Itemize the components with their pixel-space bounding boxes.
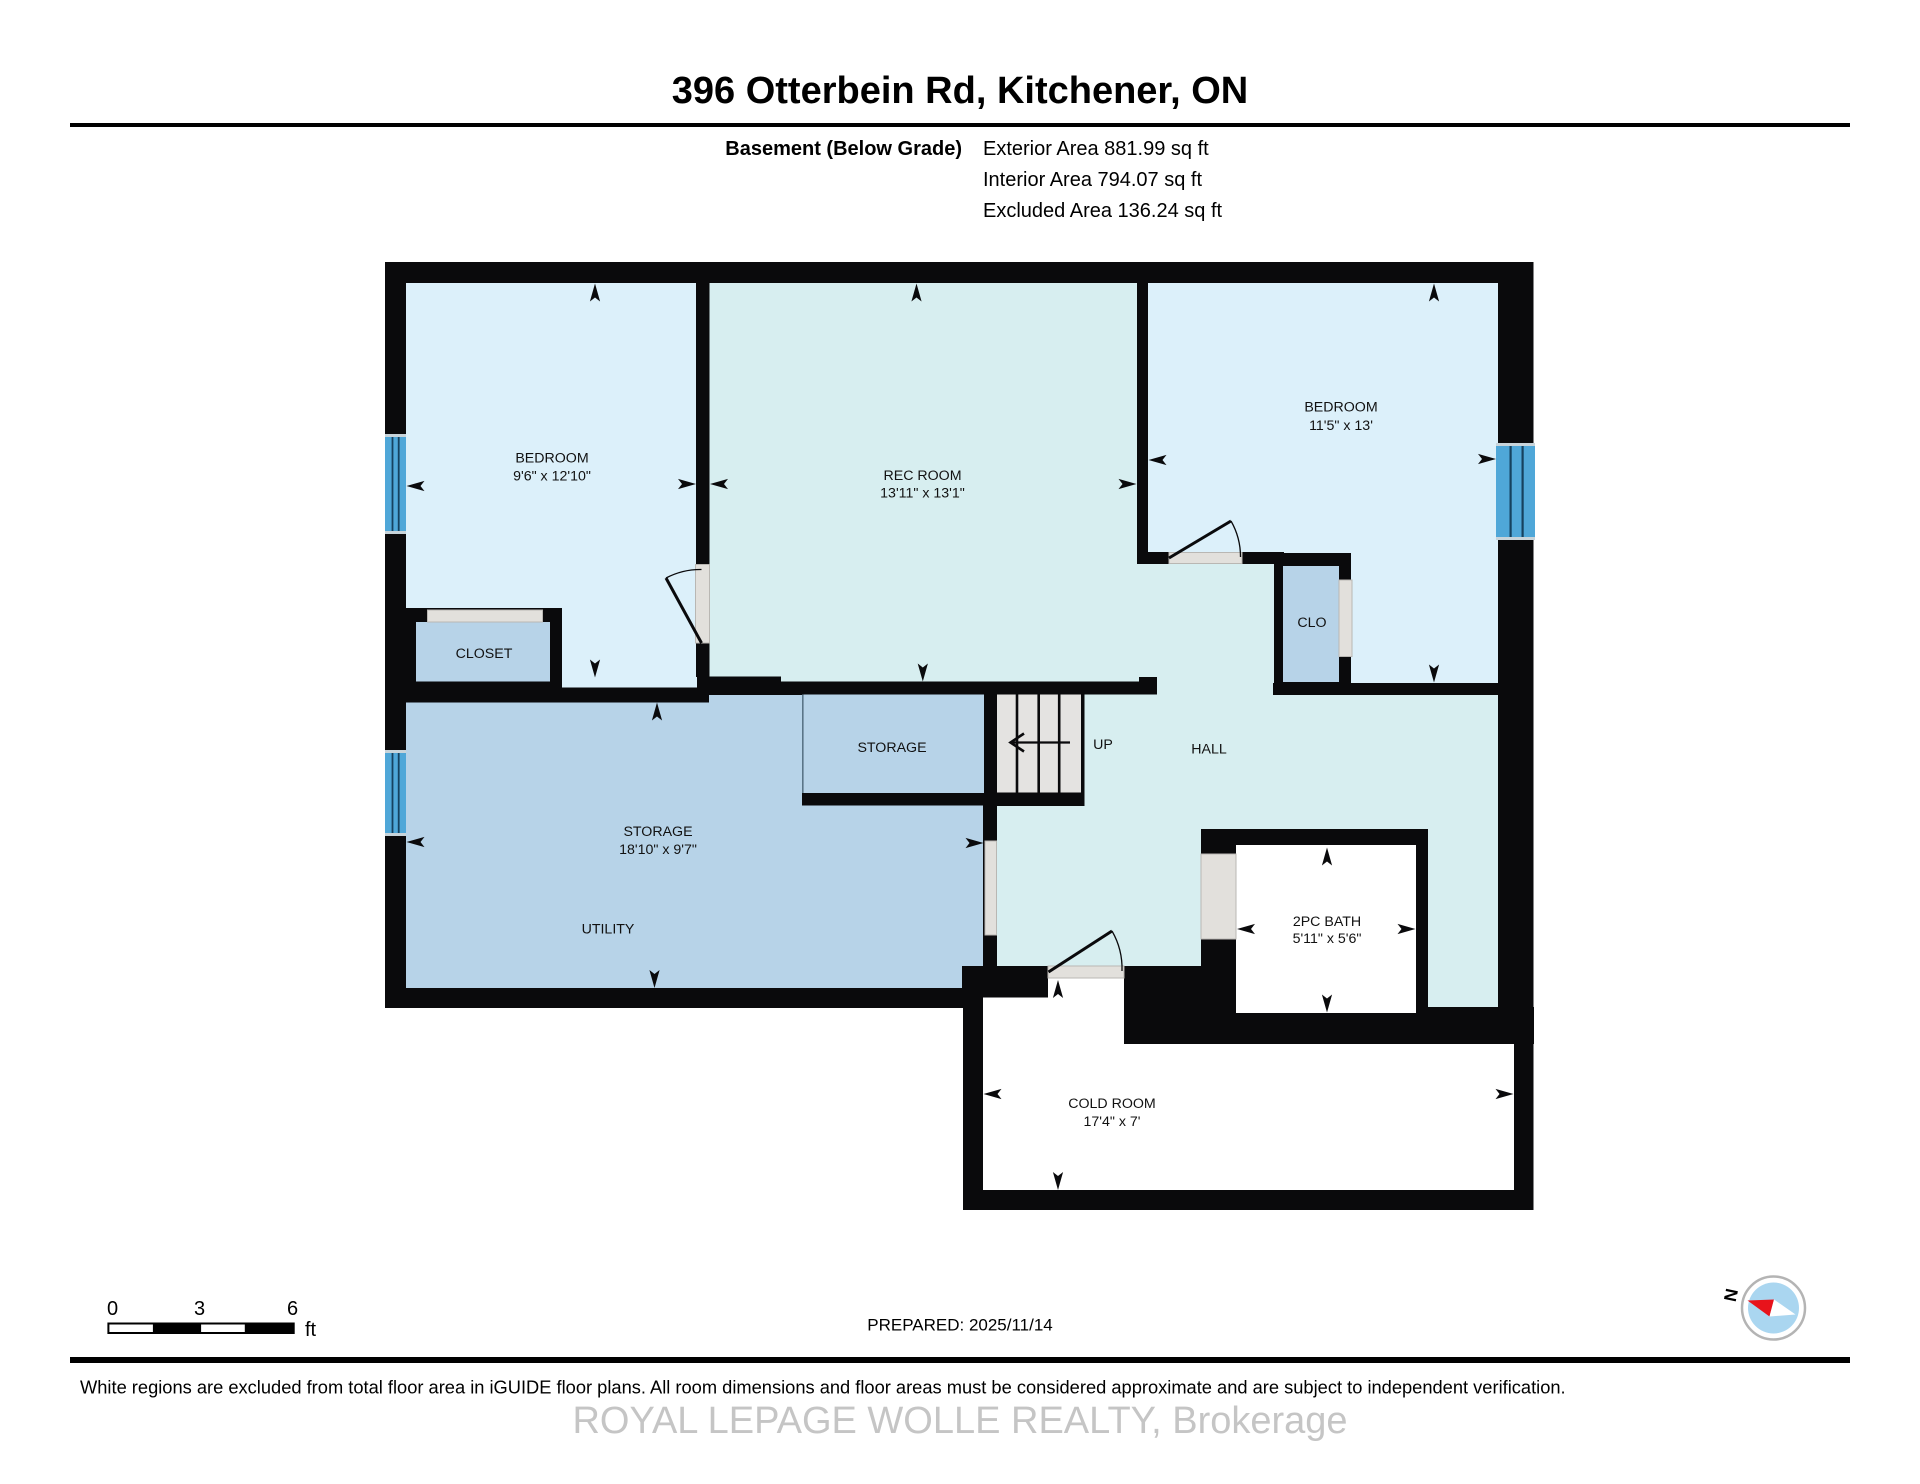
svg-text:Basement (Below Grade): Basement (Below Grade) [725, 138, 962, 160]
svg-text:5'11" x 5'6": 5'11" x 5'6" [1293, 931, 1362, 947]
svg-text:STORAGE: STORAGE [857, 740, 926, 756]
svg-text:BEDROOM: BEDROOM [1304, 400, 1377, 416]
svg-text:17'4" x 7': 17'4" x 7' [1084, 1114, 1141, 1130]
svg-text:ROYAL LEPAGE WOLLE REALTY, Bro: ROYAL LEPAGE WOLLE REALTY, Brokerage [572, 1400, 1347, 1442]
svg-text:Excluded Area 136.24 sq ft: Excluded Area 136.24 sq ft [983, 200, 1222, 222]
svg-text:UP: UP [1093, 737, 1113, 753]
svg-text:CLO: CLO [1297, 615, 1326, 631]
svg-text:UTILITY: UTILITY [582, 922, 635, 938]
svg-text:0: 0 [107, 1298, 118, 1320]
svg-text:6: 6 [287, 1298, 298, 1320]
svg-text:3: 3 [194, 1298, 205, 1320]
svg-text:BEDROOM: BEDROOM [515, 451, 588, 467]
svg-text:HALL: HALL [1191, 742, 1227, 758]
svg-text:Interior Area 794.07 sq ft: Interior Area 794.07 sq ft [983, 169, 1202, 191]
svg-text:PREPARED: 2025/11/14: PREPARED: 2025/11/14 [867, 1316, 1053, 1335]
svg-text:9'6" x 12'10": 9'6" x 12'10" [513, 469, 591, 485]
svg-text:396 Otterbein Rd, Kitchener, O: 396 Otterbein Rd, Kitchener, ON [672, 70, 1248, 112]
svg-text:COLD ROOM: COLD ROOM [1068, 1096, 1156, 1112]
svg-text:18'10" x 9'7": 18'10" x 9'7" [619, 842, 697, 858]
svg-text:2PC BATH: 2PC BATH [1293, 914, 1361, 930]
svg-text:13'11" x 13'1": 13'11" x 13'1" [880, 486, 965, 502]
svg-text:REC ROOM: REC ROOM [883, 468, 961, 484]
svg-text:ft: ft [305, 1319, 317, 1341]
svg-text:STORAGE: STORAGE [623, 824, 692, 840]
svg-text:Exterior Area 881.99 sq ft: Exterior Area 881.99 sq ft [983, 138, 1209, 160]
svg-text:White regions are excluded fro: White regions are excluded from total fl… [80, 1377, 1566, 1398]
svg-text:11'5" x 13': 11'5" x 13' [1309, 418, 1373, 434]
svg-text:CLOSET: CLOSET [456, 646, 513, 662]
